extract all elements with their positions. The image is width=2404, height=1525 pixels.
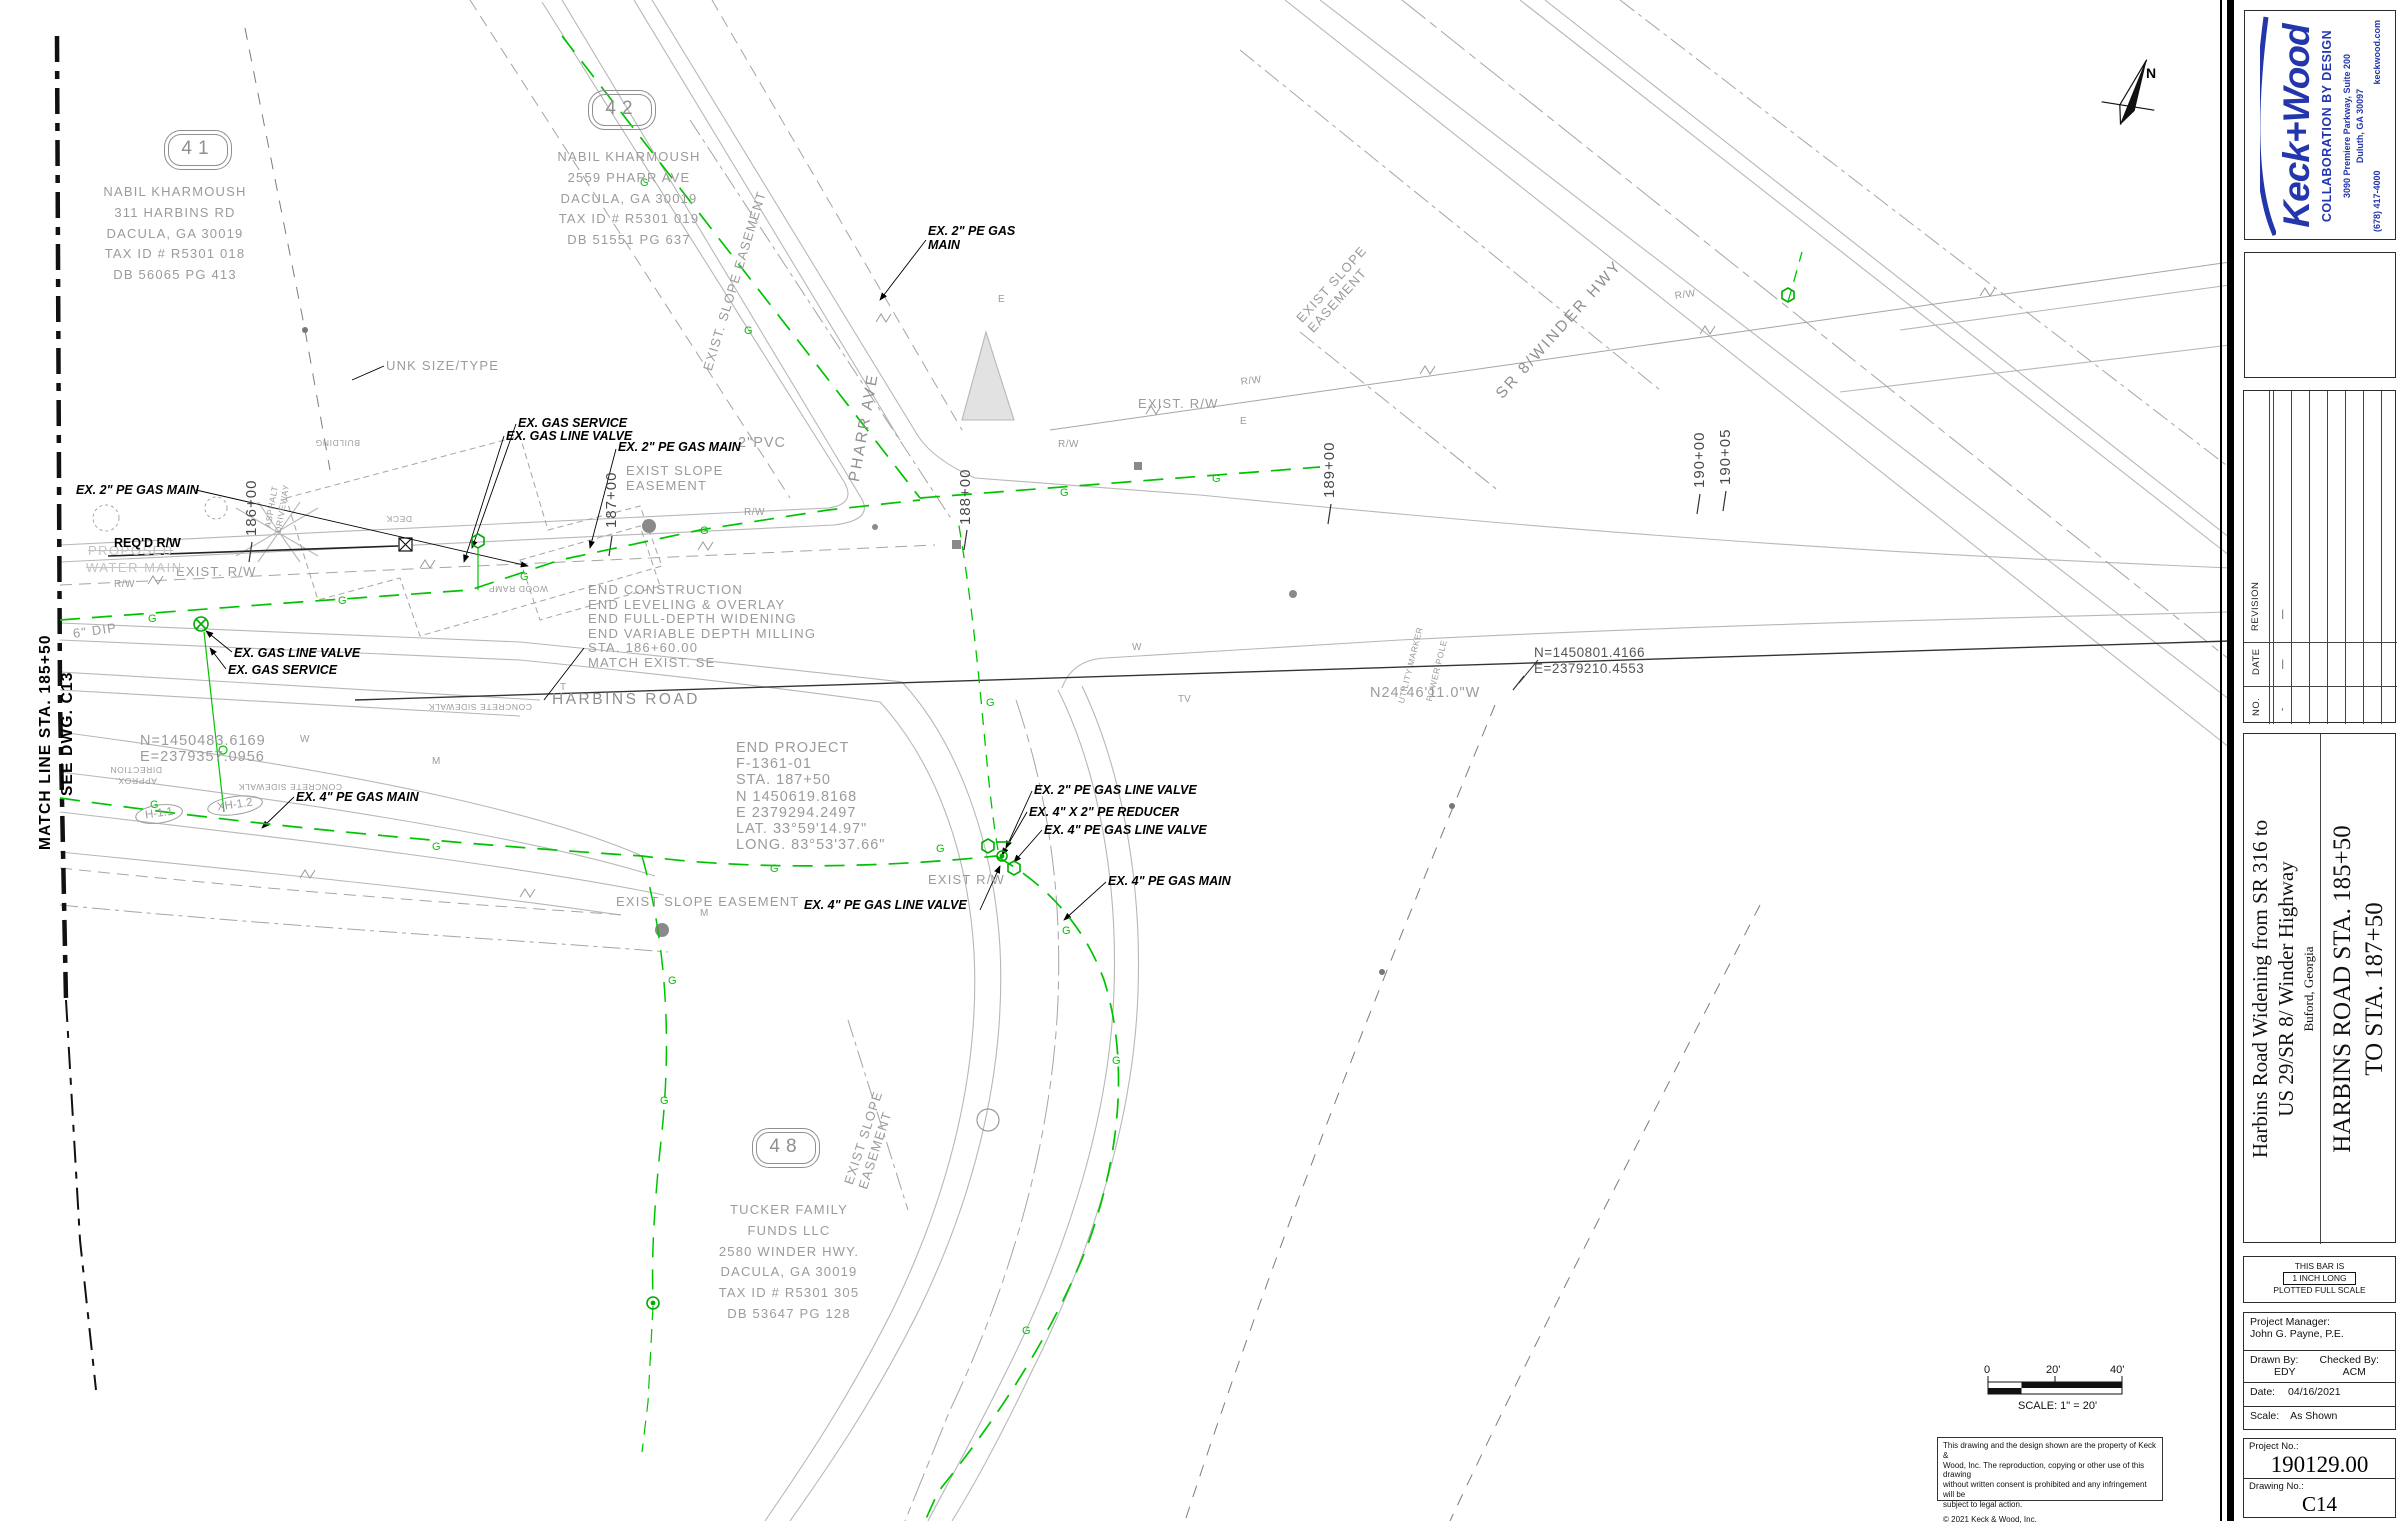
- svg-text:W: W: [1132, 642, 1142, 653]
- svg-text:G: G: [700, 525, 709, 537]
- svg-text:G: G: [1062, 925, 1071, 937]
- firm-tagline: COLLABORATION BY DESIGN: [2320, 30, 2334, 222]
- bar-note-1: THIS BAR IS: [2244, 1261, 2395, 1272]
- match-line-label: MATCH LINE STA. 185+50: [36, 634, 56, 850]
- svg-text:G: G: [660, 1095, 669, 1107]
- revision-col-header: REVISION: [2250, 582, 2261, 631]
- svg-text:TV: TV: [1178, 694, 1191, 705]
- firm-address-2: Duluth, GA 30097: [2355, 89, 2365, 163]
- revision-grid-line: [2381, 391, 2382, 724]
- revision-grid-line: [2291, 391, 2292, 724]
- svg-text:G: G: [432, 841, 441, 853]
- svg-text:G: G: [338, 595, 347, 607]
- scale-label: Scale:: [2250, 1410, 2279, 1422]
- pvc-label: 2"PVC: [738, 434, 786, 453]
- revision-entry: —: [2277, 609, 2288, 619]
- svg-text:M: M: [432, 756, 440, 767]
- no-col-header: NO.: [2251, 698, 2262, 716]
- parcel-42-address: NABIL KHARMOUSH 2559 PHARR AVE DACULA, G…: [520, 147, 738, 251]
- scale-caption: SCALE: 1" = 20': [2018, 1400, 2097, 1412]
- gas-main-2in-center: EX. 2" PE GAS MAIN: [618, 440, 741, 454]
- rw-tick-1: R/W: [744, 506, 765, 519]
- svg-text:G: G: [744, 325, 753, 337]
- checked-by-label: Checked By:: [2320, 1354, 2390, 1366]
- water-main-label: WATER MAIN: [86, 560, 183, 577]
- revision-table: REVISION DATE NO. — — -: [2243, 390, 2396, 723]
- station-186: 186+00: [242, 480, 262, 536]
- copyright-line: Wood, Inc. The reproduction, copying or …: [1943, 1461, 2157, 1481]
- drawing-number-box: Project No.: 190129.00 Drawing No.: C14: [2243, 1438, 2396, 1518]
- station-188: 188+00: [956, 469, 976, 525]
- revision-entry-no: -: [2277, 707, 2288, 711]
- gas-valve-4in-b: EX. 4" PE GAS LINE VALVE: [804, 898, 967, 912]
- seal-box: [2244, 252, 2396, 378]
- gas-main-2in-west: EX. 2" PE GAS MAIN: [76, 483, 199, 497]
- station-187: 187+00: [602, 472, 622, 528]
- pm-name: John G. Payne, P.E.: [2250, 1328, 2389, 1340]
- parcel-41-address: NABIL KHARMOUSH 311 HARBINS RD DACULA, G…: [66, 182, 284, 286]
- wood-ramp-label: WOOD RAMP: [488, 583, 548, 594]
- rw-tick-2: R/W: [1058, 438, 1079, 451]
- parcel-42-bubble: 42: [592, 94, 652, 126]
- copyright-line: without written consent is prohibited an…: [1943, 1480, 2157, 1500]
- survey-lines: [57, 36, 2230, 1390]
- deck-label: DECK: [386, 513, 412, 524]
- drawn-by-label: Drawn By:: [2250, 1354, 2320, 1366]
- exist-rw-ne: EXIST. R/W: [1138, 396, 1219, 413]
- revision-grid-line: [2363, 391, 2364, 724]
- checked-by: ACM: [2320, 1366, 2390, 1378]
- gas-main-4in-east: EX. 4" PE GAS MAIN: [1108, 874, 1231, 888]
- rw-tick-5: R/W: [114, 578, 135, 591]
- north-arrow-icon: [2096, 50, 2170, 134]
- end-project-note: END PROJECT F-1361-01 STA. 187+50 N 1450…: [736, 740, 885, 854]
- approx-direction-label: APPROX. DIRECTION: [110, 764, 162, 786]
- svg-text:G: G: [668, 975, 677, 987]
- scale-value: As Shown: [2290, 1410, 2337, 1422]
- revision-grid-line: [2244, 642, 2397, 643]
- gas-valve-2in-line: EX. 2" PE GAS LINE VALVE: [1034, 783, 1197, 797]
- revision-grid-line: [2273, 391, 2274, 724]
- svg-text:G: G: [148, 613, 157, 625]
- project-info-box: Project Manager: John G. Payne, P.E. Dra…: [2243, 1312, 2396, 1430]
- svg-text:G: G: [1212, 473, 1221, 485]
- project-location: Buford, Georgia: [2301, 947, 2317, 1032]
- svg-text:W: W: [300, 734, 310, 745]
- scale-end: 40': [2110, 1364, 2124, 1376]
- north-letter: N: [2146, 64, 2156, 82]
- copyright-note: This drawing and the design shown are th…: [1937, 1437, 2163, 1501]
- concrete-sidewalk-1: CONCRETE SIDEWALK: [428, 701, 532, 712]
- bar-scale-note-box: THIS BAR IS 1 INCH LONG PLOTTED FULL SCA…: [2243, 1256, 2396, 1303]
- sheet-title-line-2: TO STA. 187+50: [2359, 902, 2392, 1075]
- drawing-no: C14: [2249, 1492, 2390, 1517]
- revision-grid-line: [2327, 391, 2328, 724]
- svg-text:G: G: [1060, 487, 1069, 499]
- road-edges: [60, 0, 2230, 1521]
- station-190: 190+00: [1690, 432, 1710, 488]
- coordinate-east: N=1450801.4166 E=2379210.4553: [1534, 645, 1645, 677]
- revision-grid-line: [2345, 391, 2346, 724]
- copyright-line: subject to legal action.: [1943, 1500, 2157, 1510]
- panel-border-thin: [2220, 0, 2222, 1521]
- project-title-cell: Harbins Road Widening from SR 316 to US …: [2244, 734, 2320, 1244]
- gas-main-4in-west: EX. 4" PE GAS MAIN: [296, 790, 419, 804]
- revision-grid-line: [2309, 391, 2310, 724]
- exist-rw-s: EXIST R/W: [928, 872, 1005, 889]
- drawn-by: EDY: [2250, 1366, 2320, 1378]
- building-label: BUILDING: [315, 437, 360, 448]
- gas-service-west: EX. GAS SERVICE: [228, 663, 337, 677]
- date-label: Date:: [2250, 1386, 2275, 1398]
- revision-entry-date: —: [2277, 659, 2288, 669]
- plan-linework: G G G G G G G G G G G G G G G G G G E E …: [0, 0, 2404, 1521]
- firm-logo-box: Keck+Wood COLLABORATION BY DESIGN 3090 P…: [2244, 10, 2396, 240]
- svg-text:E: E: [1240, 416, 1247, 427]
- plan-sheet: G G G G G G G G G G G G G G G G G G E E …: [0, 0, 2404, 1521]
- project-no: 190129.00: [2249, 1452, 2390, 1478]
- coordinate-west: N=1450483.6169 E=2379357.0956: [140, 733, 266, 765]
- station-189: 189+00: [1320, 442, 1340, 498]
- svg-text:G: G: [986, 697, 995, 709]
- svg-text:E: E: [998, 294, 1005, 305]
- drawing-no-label: Drawing No.:: [2249, 1481, 2390, 1492]
- title-box: Harbins Road Widening from SR 316 to US …: [2243, 733, 2396, 1243]
- gas-reducer: EX. 4" X 2" PE REDUCER: [1029, 805, 1179, 819]
- end-construction-note: END CONSTRUCTION END LEVELING & OVERLAY …: [588, 583, 816, 670]
- sheet-title-cell: HARBINS ROAD STA. 185+50 TO STA. 187+50: [2321, 734, 2397, 1244]
- sheet-title-line-1: HARBINS ROAD STA. 185+50: [2327, 825, 2360, 1152]
- revision-grid-line: [2244, 686, 2397, 687]
- copyright-notice: © 2021 Keck & Wood, Inc.: [1943, 1515, 2157, 1525]
- scale-zero: 0: [1984, 1364, 1990, 1376]
- scale-mid: 20': [2046, 1364, 2060, 1376]
- road-name-harbins: HARBINS ROAD: [552, 690, 700, 710]
- match-line-dwg-ref: SEE DWG. C13: [58, 671, 78, 796]
- panel-border-thick: [2227, 0, 2234, 1521]
- gas-main-2in-pharr: EX. 2" PE GAS MAIN: [928, 224, 1015, 253]
- right-of-way-lines: [60, 0, 2230, 1521]
- firm-address-1: 3090 Premiere Parkway, Suite 200: [2342, 54, 2352, 198]
- svg-text:G: G: [520, 571, 529, 583]
- revision-grid-line: [2269, 391, 2270, 724]
- gas-valve-north: EX. GAS LINE VALVE: [506, 429, 632, 443]
- firm-website: keckwood.com: [2372, 20, 2382, 85]
- gas-valve-symbols: [194, 288, 1794, 1309]
- svg-text:G: G: [936, 843, 945, 855]
- rw-tick-3: R/W: [1240, 373, 1262, 388]
- logo-swoosh-icon: [2260, 13, 2276, 239]
- reqd-rw-label: REQ'D R/W: [114, 535, 181, 551]
- parcel-48-address: TUCKER FAMILY FUNDS LLC 2580 WINDER HWY.…: [680, 1200, 898, 1325]
- scale-bar: [1988, 1376, 2122, 1394]
- parcel-41-bubble: 41: [168, 134, 228, 166]
- date-value: 04/16/2021: [2288, 1386, 2341, 1398]
- project-no-label: Project No.:: [2249, 1441, 2390, 1452]
- station-190-05: 190+05: [1716, 429, 1736, 485]
- firm-phone: (678) 417-4000: [2372, 170, 2382, 232]
- firm-logo: Keck+Wood: [2276, 24, 2318, 227]
- slope-easement-s: EXIST SLOPE EASEMENT: [616, 894, 799, 911]
- slope-easement-pharr-w: EXIST SLOPE EASEMENT: [626, 464, 724, 493]
- bar-note-3: PLOTTED FULL SCALE: [2244, 1285, 2395, 1296]
- gas-valve-west: EX. GAS LINE VALVE: [234, 646, 360, 660]
- pm-label: Project Manager:: [2250, 1316, 2389, 1328]
- exist-rw-left: EXIST. R/W: [176, 564, 257, 581]
- svg-text:G: G: [770, 863, 779, 875]
- copyright-line: This drawing and the design shown are th…: [1943, 1441, 2157, 1461]
- parcel-48-bubble: 48: [756, 1132, 816, 1164]
- project-title-line-2: US 29/SR 8/ Winder Highway: [2273, 861, 2299, 1116]
- gas-linetype-letters: G G G G G G G G G G G G G G G G G G: [148, 177, 1221, 1337]
- unknown-utility: UNK SIZE/TYPE: [386, 358, 499, 375]
- svg-text:G: G: [1112, 1055, 1121, 1067]
- date-col-header: DATE: [2251, 648, 2262, 675]
- svg-text:G: G: [1022, 1325, 1031, 1337]
- gas-valve-4in-a: EX. 4" PE GAS LINE VALVE: [1044, 823, 1207, 837]
- leader-lines: [196, 240, 1106, 920]
- bar-note-2: 1 INCH LONG: [2283, 1272, 2355, 1285]
- project-title-line-1: Harbins Road Widening from SR 316 to: [2247, 820, 2273, 1158]
